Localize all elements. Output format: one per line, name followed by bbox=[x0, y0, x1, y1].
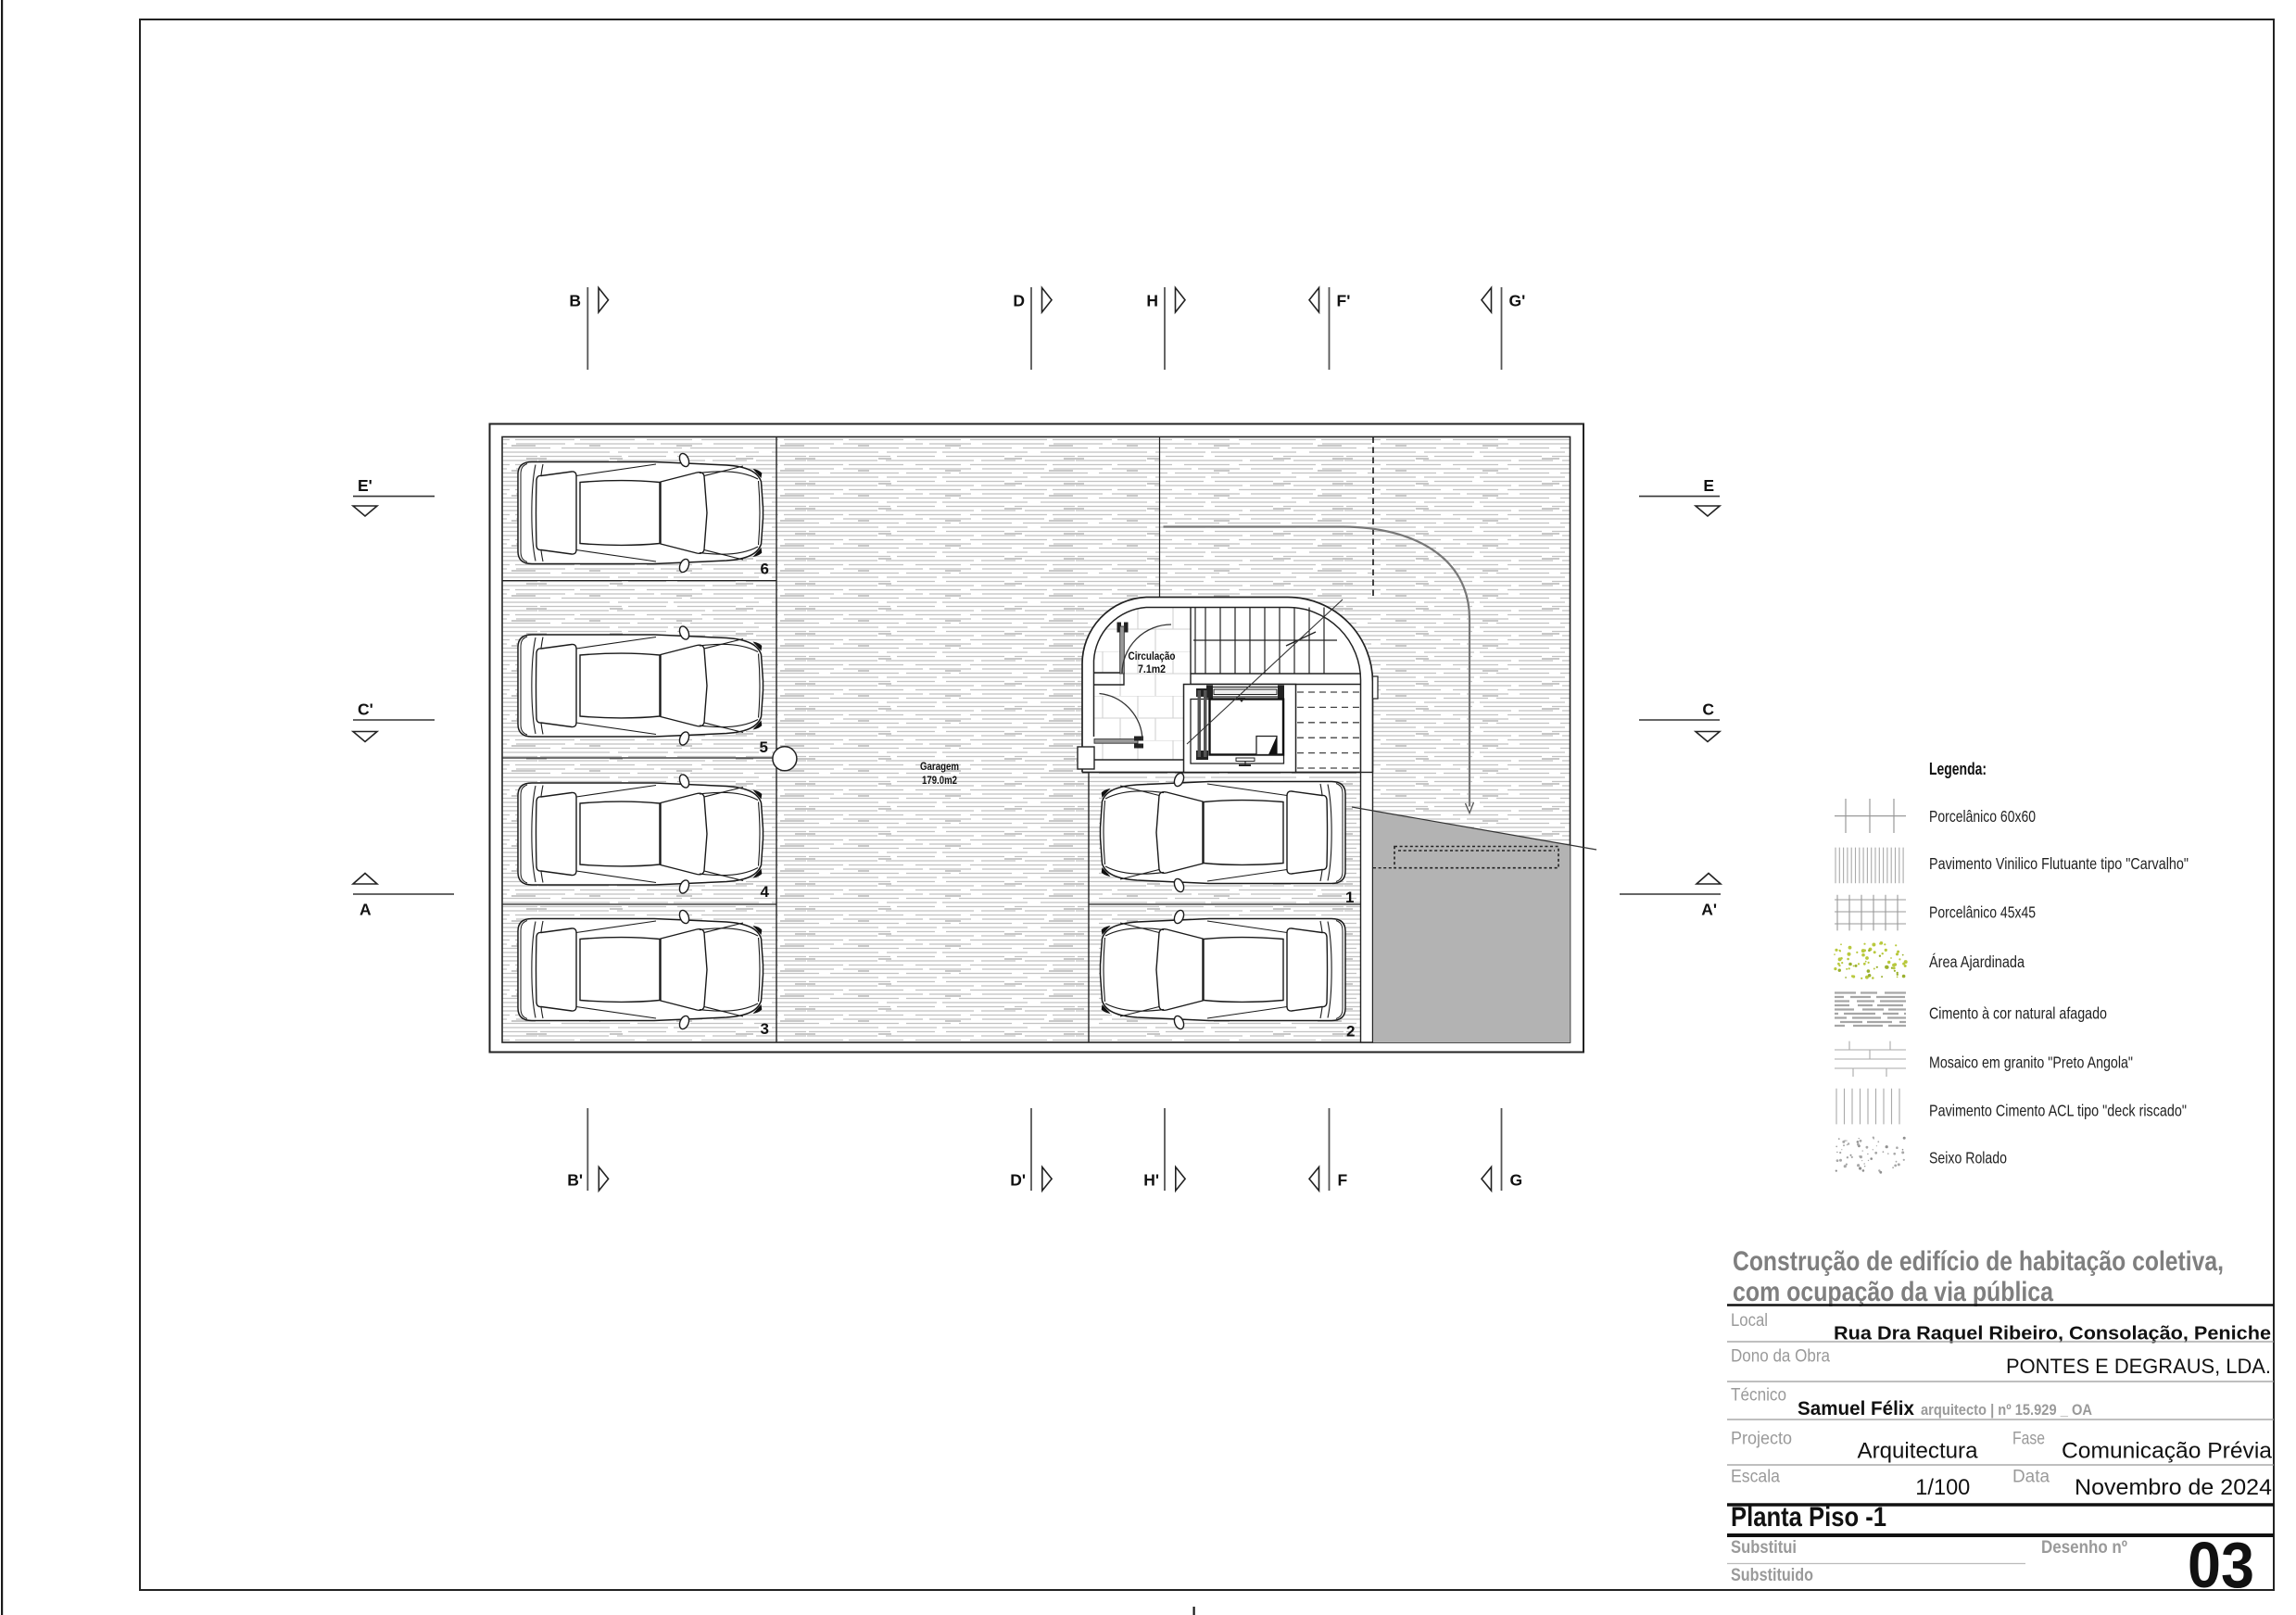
svg-text:Área Ajardinada: Área Ajardinada bbox=[1929, 953, 2025, 971]
svg-text:C: C bbox=[1702, 700, 1714, 719]
svg-text:Circulação: Circulação bbox=[1129, 651, 1176, 662]
svg-text:Escala: Escala bbox=[1731, 1468, 1780, 1487]
svg-text:Data: Data bbox=[2012, 1468, 2050, 1487]
svg-text:Legenda:: Legenda: bbox=[1929, 760, 1987, 778]
svg-text:B: B bbox=[569, 292, 581, 310]
svg-text:A': A' bbox=[1701, 901, 1717, 919]
svg-text:E: E bbox=[1703, 476, 1714, 495]
svg-text:C': C' bbox=[358, 700, 373, 719]
svg-text:3: 3 bbox=[761, 1020, 769, 1038]
svg-text:Desenho nº: Desenho nº bbox=[2041, 1538, 2127, 1558]
svg-text:A: A bbox=[360, 901, 372, 919]
svg-text:Pavimento Cimento ACL tipo "de: Pavimento Cimento ACL tipo "deck riscado… bbox=[1929, 1102, 2187, 1120]
svg-text:Substitui: Substitui bbox=[1731, 1538, 1797, 1558]
svg-text:G': G' bbox=[1509, 292, 1526, 310]
svg-text:PONTES E DEGRAUS, LDA.: PONTES E DEGRAUS, LDA. bbox=[2006, 1355, 2271, 1378]
svg-text:179.0m2: 179.0m2 bbox=[922, 776, 957, 787]
svg-text:4: 4 bbox=[761, 883, 770, 901]
svg-text:Planta Piso -1: Planta Piso -1 bbox=[1731, 1502, 1886, 1533]
svg-text:1: 1 bbox=[1345, 889, 1354, 906]
svg-text:Garagem: Garagem bbox=[920, 762, 959, 773]
svg-text:D: D bbox=[1013, 292, 1025, 310]
svg-text:Dono da Obra: Dono da Obra bbox=[1731, 1347, 1830, 1367]
svg-text:arquitecto | nº 15.929 _ OA: arquitecto | nº 15.929 _ OA bbox=[1921, 1401, 2092, 1419]
svg-text:Construção de edifício de habi: Construção de edifício de habitação cole… bbox=[1733, 1246, 2224, 1277]
svg-text:Local: Local bbox=[1731, 1311, 1768, 1331]
svg-text:F': F' bbox=[1337, 292, 1351, 310]
svg-text:Novembro de 2024: Novembro de 2024 bbox=[2075, 1475, 2272, 1500]
svg-text:Comunicação Prévia: Comunicação Prévia bbox=[2062, 1439, 2272, 1464]
svg-text:7.1m2: 7.1m2 bbox=[1138, 664, 1166, 675]
svg-text:03: 03 bbox=[2188, 1529, 2254, 1601]
svg-text:Cimento à cor natural afagado: Cimento à cor natural afagado bbox=[1929, 1004, 2107, 1023]
svg-text:1/100: 1/100 bbox=[1915, 1475, 1970, 1500]
svg-text:Projecto: Projecto bbox=[1731, 1430, 1792, 1449]
svg-text:H: H bbox=[1146, 292, 1158, 310]
svg-text:Pavimento Vinilico Flutuante t: Pavimento Vinilico Flutuante tipo "Carva… bbox=[1929, 854, 2189, 873]
svg-text:H': H' bbox=[1143, 1171, 1159, 1190]
svg-text:Porcelânico 60x60: Porcelânico 60x60 bbox=[1929, 807, 2036, 826]
svg-text:Samuel Félix: Samuel Félix bbox=[1798, 1398, 1914, 1419]
svg-text:Arquitectura: Arquitectura bbox=[1858, 1439, 1978, 1464]
svg-text:D': D' bbox=[1010, 1171, 1026, 1190]
svg-text:Mosaico em granito "Preto Ango: Mosaico em granito "Preto Angola" bbox=[1929, 1054, 2133, 1072]
svg-text:B': B' bbox=[567, 1171, 583, 1190]
svg-text:Seixo Rolado: Seixo Rolado bbox=[1929, 1149, 2007, 1167]
svg-text:Técnico: Técnico bbox=[1731, 1386, 1786, 1406]
svg-text:6: 6 bbox=[761, 561, 769, 578]
svg-text:Porcelânico 45x45: Porcelânico 45x45 bbox=[1929, 903, 2036, 922]
svg-text:5: 5 bbox=[760, 738, 768, 756]
svg-text:G: G bbox=[1510, 1171, 1523, 1190]
svg-text:F: F bbox=[1338, 1171, 1348, 1190]
svg-text:com ocupação da via pública: com ocupação da via pública bbox=[1733, 1277, 2053, 1307]
svg-text:Substituido: Substituido bbox=[1731, 1566, 1813, 1585]
svg-text:Rua Dra Raquel Ribeiro, Consol: Rua Dra Raquel Ribeiro, Consolação, Peni… bbox=[1834, 1323, 2271, 1344]
svg-text:E': E' bbox=[358, 476, 372, 495]
svg-text:2: 2 bbox=[1346, 1022, 1355, 1040]
svg-text:Fase: Fase bbox=[2012, 1430, 2045, 1449]
